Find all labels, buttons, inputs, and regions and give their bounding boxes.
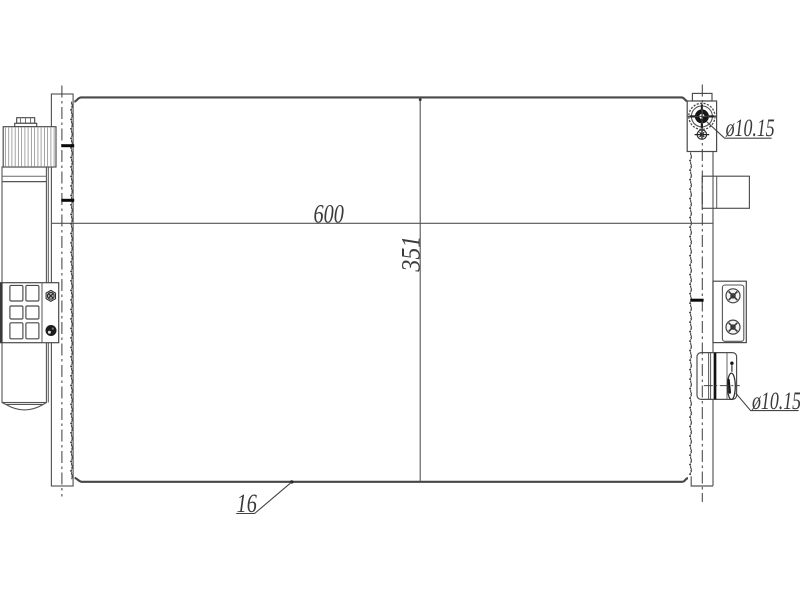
svg-text:ø10.15: ø10.15 [751, 386, 800, 415]
svg-text:351: 351 [398, 236, 426, 273]
svg-text:16: 16 [237, 490, 258, 519]
svg-text:600: 600 [314, 200, 345, 229]
svg-text:ø10.15: ø10.15 [725, 113, 775, 142]
